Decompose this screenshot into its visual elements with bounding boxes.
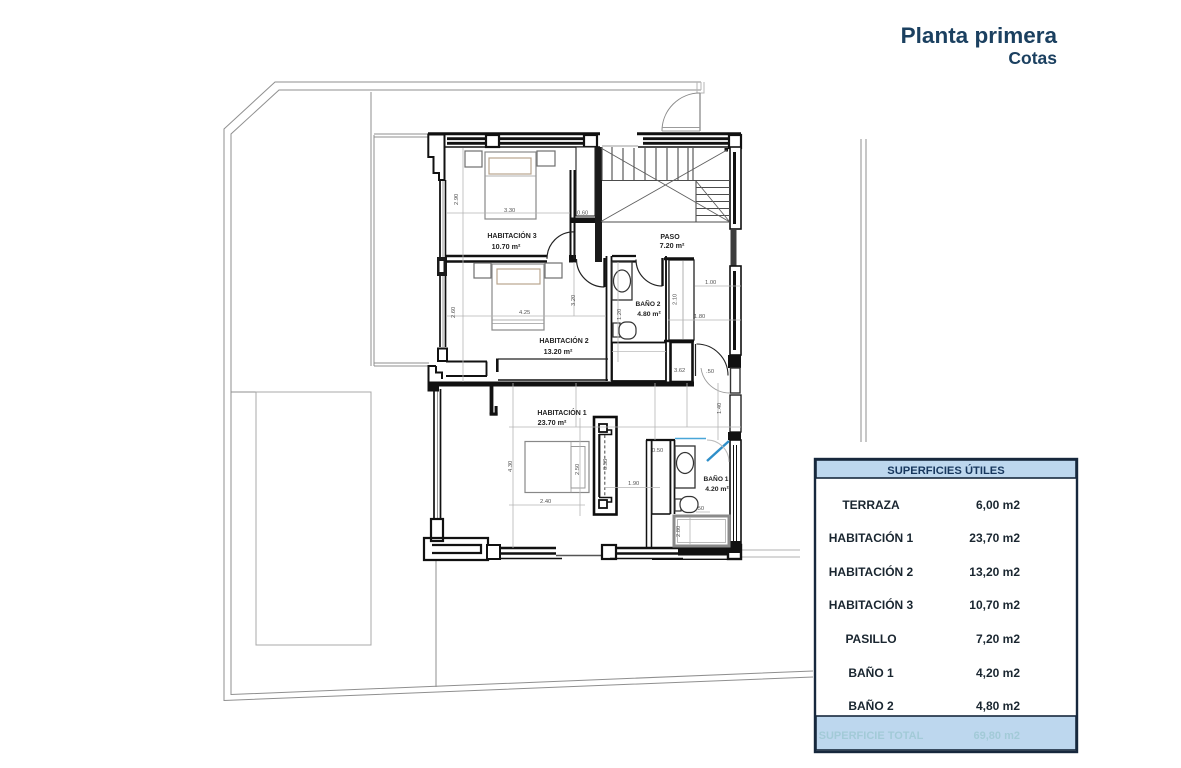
svg-text:HABITACIÓN 1: HABITACIÓN 1 — [829, 530, 914, 545]
svg-text:0.50: 0.50 — [652, 448, 663, 454]
svg-text:1.00: 1.00 — [705, 280, 716, 286]
svg-text:7.20 m²: 7.20 m² — [660, 241, 685, 250]
svg-text:4.30: 4.30 — [508, 461, 514, 472]
svg-text:PASILLO: PASILLO — [845, 632, 896, 646]
svg-text:0.60: 0.60 — [577, 211, 588, 217]
svg-text:TERRAZA: TERRAZA — [842, 498, 900, 512]
svg-text:7,20 m2: 7,20 m2 — [976, 632, 1020, 646]
svg-text:BAÑO 1: BAÑO 1 — [704, 474, 729, 483]
svg-text:13.20 m²: 13.20 m² — [544, 347, 573, 356]
svg-text:1.80: 1.80 — [694, 314, 705, 320]
svg-text:BAÑO 2: BAÑO 2 — [636, 299, 661, 308]
svg-text:4,80 m2: 4,80 m2 — [976, 699, 1020, 713]
svg-text:4.25: 4.25 — [519, 310, 530, 316]
svg-text:6,00 m2: 6,00 m2 — [976, 498, 1020, 512]
svg-text:2.90: 2.90 — [454, 194, 460, 205]
svg-text:BAÑO 2: BAÑO 2 — [848, 698, 894, 713]
svg-text:.50: .50 — [696, 506, 704, 512]
svg-text:Planta primera: Planta primera — [901, 23, 1058, 48]
svg-text:23.70 m²: 23.70 m² — [538, 418, 567, 427]
svg-text:13,20 m2: 13,20 m2 — [969, 565, 1020, 579]
svg-text:2.60: 2.60 — [451, 307, 457, 318]
svg-text:SUPERFICIE TOTAL: SUPERFICIE TOTAL — [819, 730, 924, 742]
svg-text:4.80 m²: 4.80 m² — [637, 311, 661, 318]
svg-text:23,70 m2: 23,70 m2 — [969, 531, 1020, 545]
svg-text:2.50: 2.50 — [575, 464, 581, 475]
svg-text:2.40: 2.40 — [540, 499, 551, 505]
svg-text:1.40: 1.40 — [717, 403, 723, 414]
svg-text:HABITACIÓN 3: HABITACIÓN 3 — [487, 231, 536, 240]
svg-text:10.70 m²: 10.70 m² — [492, 242, 521, 251]
svg-text:HABITACIÓN 1: HABITACIÓN 1 — [537, 408, 586, 417]
svg-text:3.20: 3.20 — [571, 295, 577, 306]
svg-text:.50: .50 — [706, 369, 714, 375]
svg-text:2.80: 2.80 — [676, 526, 682, 537]
svg-text:HABITACIÓN 3: HABITACIÓN 3 — [829, 597, 914, 612]
svg-text:1.20: 1.20 — [617, 309, 623, 320]
svg-text:10,70 m2: 10,70 m2 — [969, 598, 1020, 612]
svg-text:0.53: 0.53 — [603, 459, 609, 470]
svg-text:SUPERFICIES ÚTILES: SUPERFICIES ÚTILES — [887, 464, 1005, 477]
svg-text:Cotas: Cotas — [1008, 48, 1057, 68]
svg-text:HABITACIÓN 2: HABITACIÓN 2 — [539, 336, 588, 345]
svg-text:1.90: 1.90 — [628, 481, 639, 487]
svg-text:4.20 m²: 4.20 m² — [705, 486, 729, 493]
svg-text:3.62: 3.62 — [674, 368, 685, 374]
svg-text:69,80 m2: 69,80 m2 — [974, 730, 1020, 742]
svg-text:2.10: 2.10 — [673, 294, 679, 305]
svg-text:HABITACIÓN 2: HABITACIÓN 2 — [829, 564, 914, 579]
svg-text:BAÑO 1: BAÑO 1 — [848, 665, 894, 680]
svg-text:PASO: PASO — [660, 234, 680, 241]
svg-text:3.30: 3.30 — [504, 208, 515, 214]
svg-text:4,20 m2: 4,20 m2 — [976, 666, 1020, 680]
